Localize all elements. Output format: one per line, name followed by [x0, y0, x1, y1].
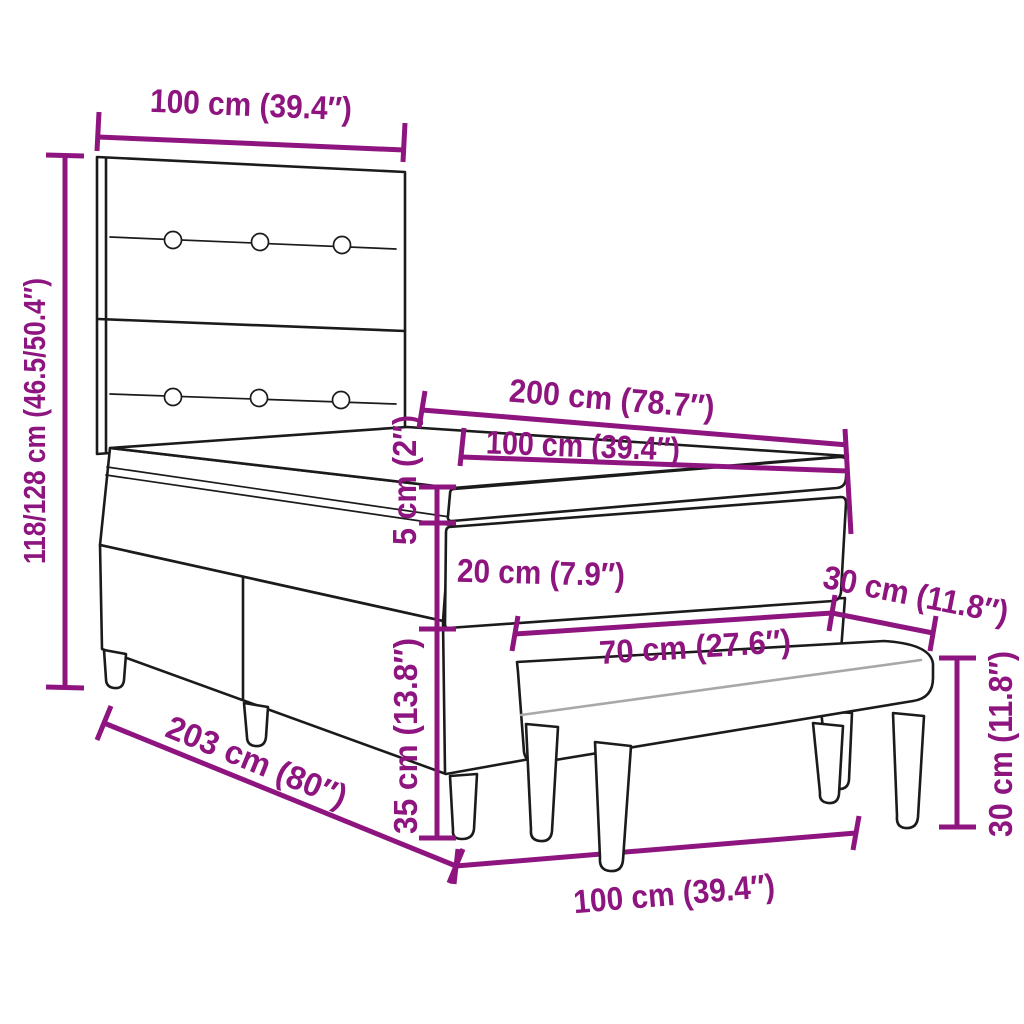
headboard-button [334, 237, 351, 254]
dim-label-bench-overall-width: 100 cm (39.4″) [572, 867, 776, 920]
headboard-button [251, 390, 268, 407]
dim-label-mattress-thickness: 20 cm (7.9″) [457, 552, 626, 593]
bed-dimension-diagram: 100 cm (39.4″) 118/128 cm (46.5/50.4″) 2… [0, 0, 1024, 1024]
headboard-button [252, 234, 269, 251]
bench-leg [526, 724, 558, 841]
dim-bench-height [939, 658, 976, 827]
dim-label-bench-depth: 30 cm (11.8″) [820, 558, 1012, 631]
dim-bench-overall-width [454, 816, 859, 884]
bed-leg [104, 650, 126, 688]
diagram-page: 100 cm (39.4″) 118/128 cm (46.5/50.4″) 2… [0, 0, 1024, 1024]
dim-label-mattress-width: 100 cm (39.4″) [485, 423, 680, 467]
dim-label-overall-height: 118/128 cm (46.5/50.4″) [17, 278, 52, 564]
dim-label-headboard-width: 100 cm (39.4″) [149, 82, 352, 127]
bed-leg [450, 774, 477, 839]
dim-label-topper-thickness: 5 cm (2″) [386, 415, 423, 545]
bench-leg [893, 713, 924, 828]
dim-label-bench-height: 30 cm (11.8″) [982, 651, 1019, 837]
headboard-button [165, 232, 182, 249]
bench-drawing [517, 641, 933, 871]
headboard-button [333, 392, 350, 409]
headboard [97, 157, 405, 454]
dim-label-base-height: 35 cm (13.8″) [387, 638, 424, 834]
headboard-button [165, 389, 182, 406]
bench-leg [813, 723, 843, 803]
